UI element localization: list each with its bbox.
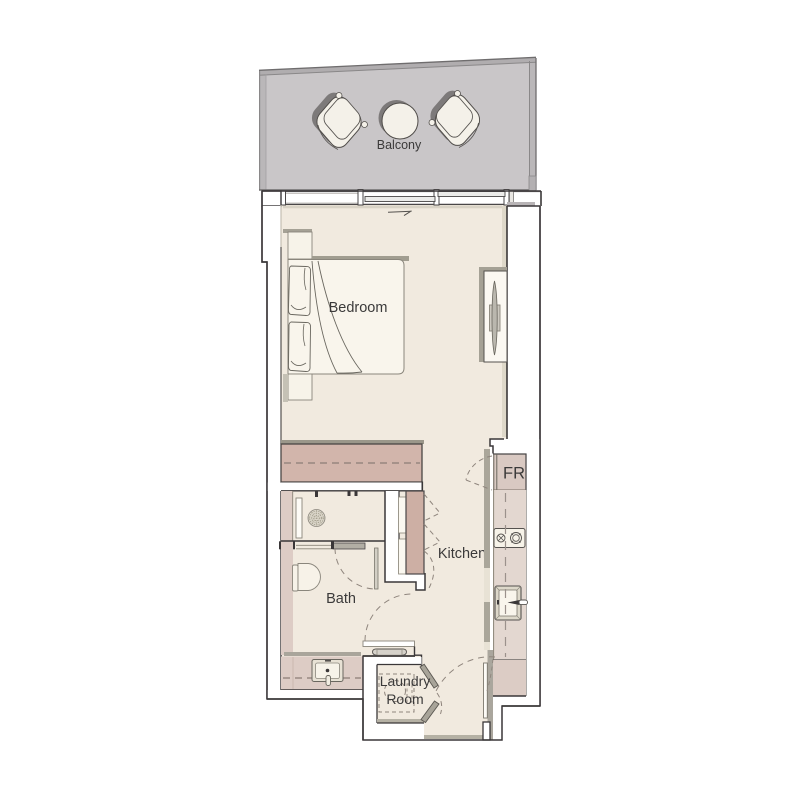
svg-text:Laundry: Laundry	[380, 673, 431, 689]
svg-text:FR: FR	[503, 465, 525, 483]
svg-text:Bedroom: Bedroom	[329, 300, 388, 316]
svg-text:Balcony: Balcony	[377, 138, 422, 152]
svg-text:Kitchen: Kitchen	[438, 546, 486, 562]
svg-text:Room: Room	[386, 691, 423, 707]
svg-text:Bath: Bath	[326, 591, 356, 607]
